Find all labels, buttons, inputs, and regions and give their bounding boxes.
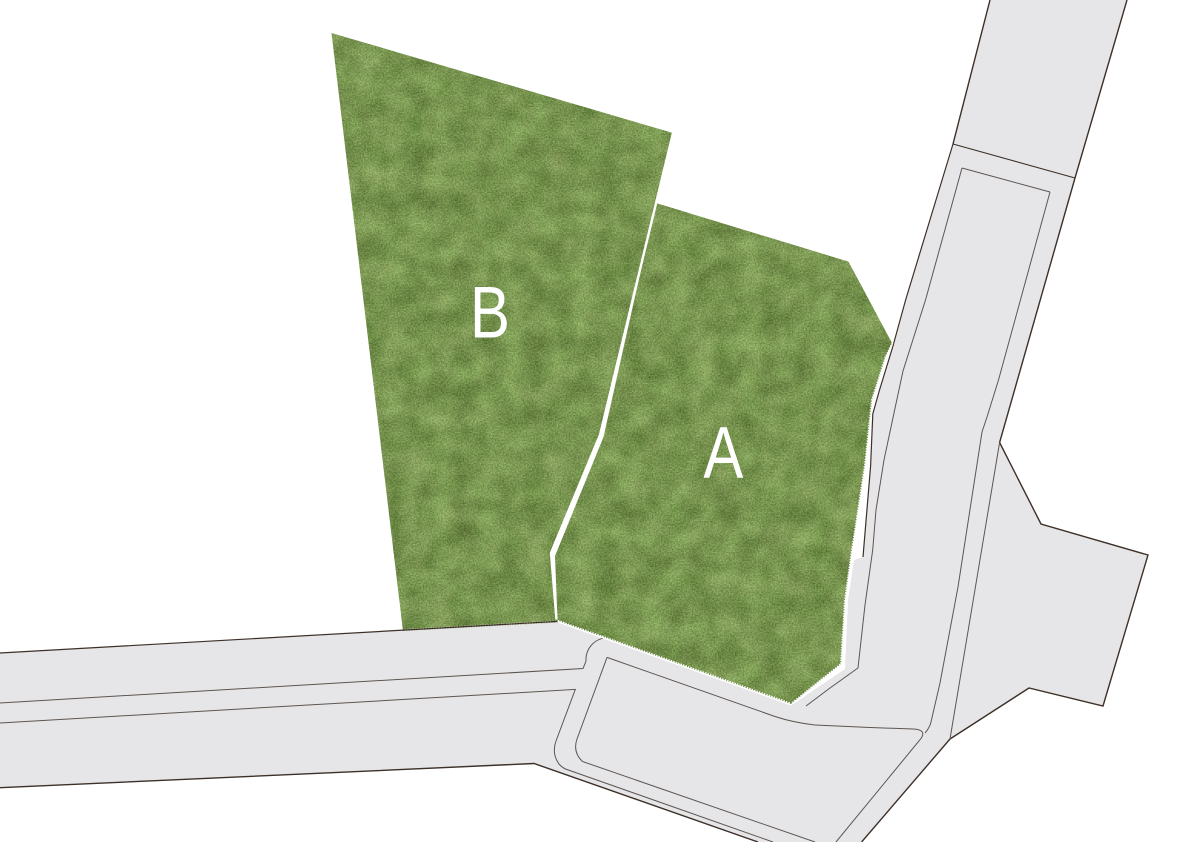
svg-text:B: B <box>470 273 510 354</box>
svg-text:A: A <box>703 413 743 494</box>
